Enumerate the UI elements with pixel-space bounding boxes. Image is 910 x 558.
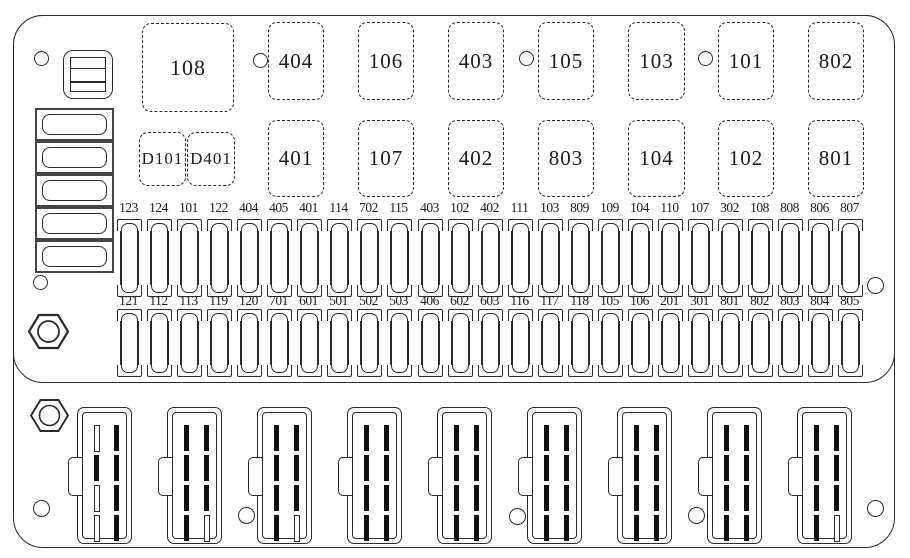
fuse-inner (542, 313, 559, 373)
connector-inner (712, 412, 757, 539)
fuse-box-diagram: 108404106403105103101802D101D40140110740… (0, 0, 910, 558)
fuse-label: 121 (112, 293, 145, 309)
fuse-inner (662, 313, 679, 373)
mounting-hole (34, 51, 49, 66)
connector-slot (294, 515, 300, 542)
connector-slot (384, 485, 389, 511)
connector-inner (802, 412, 847, 539)
connector-slot (634, 455, 639, 481)
connector-tab (518, 457, 532, 496)
fuse-label: 802 (743, 293, 776, 309)
fuse-inner (181, 313, 198, 373)
fuse (508, 219, 533, 297)
fuse-inner (782, 313, 799, 373)
relay-label: 103 (639, 49, 674, 74)
fuse (688, 219, 713, 297)
connector-slot (184, 455, 189, 481)
fuse-label: 107 (683, 200, 716, 216)
mounting-hole (867, 500, 884, 517)
fuse-label: 105 (593, 293, 626, 309)
connector-slot (544, 425, 549, 451)
connector-slot (364, 515, 369, 541)
fuse-label: 104 (623, 200, 656, 216)
relay-label: 403 (459, 49, 494, 74)
fuse (177, 219, 202, 297)
connector-inner (262, 412, 307, 539)
connector-slot (474, 515, 479, 541)
fuse-label: 124 (142, 200, 175, 216)
connector-slot (564, 515, 569, 541)
fuse (237, 219, 262, 297)
fuse (808, 309, 833, 377)
fuse-inner (632, 313, 649, 373)
connector-slot (454, 455, 459, 481)
fuse-inner (512, 223, 529, 293)
fuse-inner (301, 223, 318, 293)
fuse-inner (692, 223, 709, 293)
fuse-label: 807 (833, 200, 866, 216)
fuse-label: 405 (262, 200, 295, 216)
fuse-inner (722, 313, 739, 373)
mounting-hole (688, 507, 705, 524)
fuse (598, 309, 623, 377)
relay-label: 104 (639, 146, 674, 171)
fuse-label: 804 (803, 293, 836, 309)
fuse-label: 406 (413, 293, 446, 309)
relay-label: 108 (170, 55, 206, 81)
terminal-stack-item (35, 240, 114, 273)
connector-slot (724, 515, 729, 541)
terminal-stack-item (35, 141, 114, 174)
fuse (327, 219, 352, 297)
connector-slot (454, 485, 459, 511)
hex-bolt-icon (30, 398, 69, 433)
fuse-label: 102 (443, 200, 476, 216)
fuse (508, 309, 533, 377)
connector-slot (274, 515, 279, 541)
fuse (538, 309, 563, 377)
connector-slot (724, 425, 729, 451)
fuse-inner (151, 313, 168, 373)
fuse (838, 309, 863, 377)
connector-slot (184, 515, 189, 541)
connector-inner (442, 412, 487, 539)
relay-label: 803 (549, 146, 584, 171)
relay-label: 105 (549, 49, 584, 74)
connector-slot (654, 515, 659, 541)
fuse-label: 112 (142, 293, 175, 309)
relay-box: 108 (142, 23, 234, 112)
relay-label: 802 (819, 49, 854, 74)
fuse-inner (812, 223, 829, 293)
fuse-inner (452, 313, 469, 373)
connector (257, 407, 312, 544)
connector-slot (94, 425, 100, 452)
relay-box: 101 (718, 22, 774, 100)
connector-slot (544, 485, 549, 511)
fuse-label: 118 (563, 293, 596, 309)
fuse-inner (121, 313, 138, 373)
fuse (237, 309, 262, 377)
fuse (387, 309, 412, 377)
connector-inner (622, 412, 667, 539)
fuse-label: 601 (292, 293, 325, 309)
connector-slot (564, 485, 569, 511)
fuse-inner (241, 223, 258, 293)
fuse (718, 219, 743, 297)
connector (77, 407, 132, 544)
connector-slot (274, 485, 279, 511)
fuse-inner (662, 223, 679, 293)
connector-slot (204, 455, 209, 481)
fuse-inner (482, 313, 499, 373)
connector-slot (114, 515, 119, 541)
fuse-label: 403 (413, 200, 446, 216)
fuse-label: 116 (503, 293, 536, 309)
fuse (478, 309, 503, 377)
fuse (598, 219, 623, 297)
relay-box: 105 (538, 22, 594, 100)
connector-slot (94, 515, 100, 542)
connector-slot (294, 425, 299, 451)
connector (617, 407, 672, 544)
connector-tab (428, 457, 442, 496)
connector (797, 407, 852, 544)
connector-slot (204, 485, 209, 511)
fuse-label: 701 (262, 293, 295, 309)
connector-slot (474, 455, 479, 481)
connector-slot (724, 455, 729, 481)
fuse-inner (632, 223, 649, 293)
connector-slot (384, 455, 389, 481)
fuse-inner (241, 313, 258, 373)
connector-slot (184, 425, 189, 451)
connector (527, 407, 582, 544)
connector-slot (204, 425, 209, 451)
connector-tab (248, 457, 262, 496)
fuse (267, 309, 292, 377)
terminal-stack-item (35, 108, 114, 141)
mounting-hole (238, 507, 255, 524)
fuse-label: 106 (623, 293, 656, 309)
fuse (748, 219, 773, 297)
fuse-inner (151, 223, 168, 293)
connector-tab (608, 457, 622, 496)
connector-slot (744, 515, 749, 541)
connector-slot (834, 485, 839, 511)
fuse-label: 805 (833, 293, 866, 309)
fuse (538, 219, 563, 297)
fuse-inner (572, 223, 589, 293)
fuse (418, 309, 443, 377)
fuse-inner (782, 223, 799, 293)
connector-slot (274, 425, 279, 451)
fuse-label: 808 (773, 200, 806, 216)
fuse (357, 309, 382, 377)
relay-box: 402 (448, 120, 504, 197)
fuse-inner (331, 313, 348, 373)
terminal-stack-item (35, 174, 114, 207)
fuse-inner (542, 223, 559, 293)
connector-slot (834, 425, 839, 451)
connector-slot (654, 425, 659, 451)
fuse-inner (842, 313, 859, 373)
fuse (568, 309, 593, 377)
connector-slot (384, 515, 389, 541)
fuse-inner (482, 223, 499, 293)
fuse-label: 123 (112, 200, 145, 216)
relay-box: 102 (718, 120, 774, 197)
connector-slot (634, 485, 639, 511)
fuse (628, 219, 653, 297)
relay-box: 404 (268, 22, 324, 100)
connector-slot (204, 515, 210, 542)
fuse-label: 103 (533, 200, 566, 216)
relay-box: 801 (808, 120, 864, 197)
connector-inner (532, 412, 577, 539)
connector-slot (94, 455, 99, 481)
connector-slot (654, 455, 659, 481)
connector-slot (634, 425, 639, 451)
connector-slot (364, 485, 369, 511)
fuse-inner (121, 223, 138, 293)
relay-label: 101 (729, 49, 764, 74)
fuse-inner (211, 223, 228, 293)
connector-tab (158, 457, 172, 496)
connector-tab (68, 457, 82, 496)
fuse-label: 401 (292, 200, 325, 216)
fuse (448, 309, 473, 377)
connector-slot (454, 425, 459, 451)
fuse (778, 219, 803, 297)
relay-box: 403 (448, 22, 504, 100)
fuse-label: 603 (473, 293, 506, 309)
connector-slot (364, 425, 369, 451)
fuse-inner (692, 313, 709, 373)
fuse-label: 402 (473, 200, 506, 216)
connector-slot (834, 455, 839, 481)
relay-box: 104 (628, 120, 685, 197)
connector-slot (184, 485, 189, 511)
connector-inner (172, 412, 217, 539)
relay-label: 402 (459, 146, 494, 171)
fuse-label: 111 (503, 200, 536, 216)
fuse-inner (271, 313, 288, 373)
fuse (778, 309, 803, 377)
connector-slot (814, 425, 819, 451)
connector-tab (788, 457, 802, 496)
relay-label: 102 (729, 146, 764, 171)
mounting-hole (867, 277, 884, 294)
fuse-label: 302 (713, 200, 746, 216)
fuse-inner (422, 223, 439, 293)
fuse (327, 309, 352, 377)
fuse-inner (752, 313, 769, 373)
fuse-inner (211, 313, 228, 373)
fuse-label: 502 (352, 293, 385, 309)
connector-slot (544, 515, 549, 541)
fuse-label: 803 (773, 293, 806, 309)
fuse-label: 110 (653, 200, 686, 216)
mounting-hole (509, 508, 526, 525)
mounting-hole (33, 275, 48, 290)
connector-slot (274, 455, 279, 481)
fuse-inner (722, 223, 739, 293)
connector-slot (564, 425, 569, 451)
mounting-hole (519, 51, 534, 66)
fuse-inner (812, 313, 829, 373)
fuse (297, 309, 322, 377)
connector-slot (634, 515, 639, 541)
fuse-inner (361, 313, 378, 373)
fuse-inner (271, 223, 288, 293)
fuse (357, 219, 382, 297)
fuse (418, 219, 443, 297)
fuse-label: 108 (743, 200, 776, 216)
fuse-label: 702 (352, 200, 385, 216)
breaker-component-inner (70, 57, 106, 92)
fuse-inner (301, 313, 318, 373)
fuse-label: 122 (202, 200, 235, 216)
fuse (718, 309, 743, 377)
fuse (748, 309, 773, 377)
connector-slot (744, 455, 749, 481)
fuse-inner (391, 223, 408, 293)
connector-slot (744, 485, 749, 511)
fuse (117, 309, 142, 377)
relay-box: D401 (187, 132, 235, 186)
connector-slot (114, 425, 119, 451)
fuse-label: 602 (443, 293, 476, 309)
relay-label: 107 (369, 146, 404, 171)
connector-inner (82, 412, 127, 539)
connector-slot (814, 455, 819, 481)
fuse-inner (572, 313, 589, 373)
connector-inner (352, 412, 397, 539)
connector-slot (814, 485, 819, 511)
fuse-label: 114 (322, 200, 355, 216)
fuse (838, 219, 863, 297)
fuse (658, 219, 683, 297)
fuse-label: 404 (232, 200, 265, 216)
fuse (177, 309, 202, 377)
connector-slot (294, 485, 299, 511)
relay-box: 106 (358, 22, 414, 100)
connector-slot (114, 455, 119, 481)
fuse-label: 503 (382, 293, 415, 309)
connector-slot (294, 455, 299, 481)
connector-slot (654, 485, 659, 511)
connector-slot (544, 455, 549, 481)
relay-box: 103 (628, 22, 685, 100)
fuse (808, 219, 833, 297)
mounting-hole (33, 500, 50, 517)
connector-slot (834, 515, 840, 542)
fuse (448, 219, 473, 297)
connector-slot (94, 485, 100, 512)
fuse (628, 309, 653, 377)
fuse-label: 117 (533, 293, 566, 309)
fuse (147, 309, 172, 377)
relay-box: 401 (268, 120, 324, 197)
fuse-inner (602, 223, 619, 293)
relay-label: 401 (279, 146, 314, 171)
fuse-label: 119 (202, 293, 235, 309)
fuse (688, 309, 713, 377)
fuse-inner (331, 223, 348, 293)
relay-box: D101 (139, 132, 186, 186)
relay-label: 404 (279, 49, 314, 74)
connector-slot (384, 425, 389, 451)
connector-slot (744, 425, 749, 451)
connector-tab (698, 457, 712, 496)
connector (347, 407, 402, 544)
fuse-inner (752, 223, 769, 293)
fuse-label: 109 (593, 200, 626, 216)
fuse-label: 201 (653, 293, 686, 309)
fuse-inner (361, 223, 378, 293)
breaker-line (71, 68, 105, 69)
fuse-label: 801 (713, 293, 746, 309)
connector (437, 407, 492, 544)
breaker-line (71, 81, 105, 83)
connector (167, 407, 222, 544)
fuse-label: 101 (172, 200, 205, 216)
fuse-label: 115 (382, 200, 415, 216)
connector-slot (724, 485, 729, 511)
fuse (207, 309, 232, 377)
fuse-inner (602, 313, 619, 373)
connector-slot (474, 485, 479, 511)
fuse (207, 219, 232, 297)
fuse-label: 809 (563, 200, 596, 216)
fuse-inner (181, 223, 198, 293)
fuse (267, 219, 292, 297)
fuse-label: 806 (803, 200, 836, 216)
fuse (478, 219, 503, 297)
terminal-stack-item (35, 207, 114, 240)
hex-bolt-icon (28, 313, 69, 350)
fuse-inner (391, 313, 408, 373)
connector-tab (338, 457, 352, 496)
fuse-inner (422, 313, 439, 373)
relay-label: D101 (142, 149, 184, 169)
fuse (147, 219, 172, 297)
mounting-hole (698, 51, 713, 66)
fuse (658, 309, 683, 377)
fuse (568, 219, 593, 297)
fuse (387, 219, 412, 297)
fuse (117, 219, 142, 297)
relay-box: 803 (538, 120, 594, 197)
relay-box: 107 (358, 120, 414, 197)
fuse-inner (842, 223, 859, 293)
connector-slot (474, 425, 479, 451)
relay-label: D401 (190, 149, 232, 169)
fuse-inner (512, 313, 529, 373)
connector (707, 407, 762, 544)
connector-slot (564, 455, 569, 481)
fuse-label: 120 (232, 293, 265, 309)
mounting-hole (253, 53, 268, 68)
fuse (297, 219, 322, 297)
relay-label: 801 (819, 146, 854, 171)
connector-slot (114, 485, 119, 511)
fuse-label: 501 (322, 293, 355, 309)
fuse-inner (452, 223, 469, 293)
fuse-label: 113 (172, 293, 205, 309)
relay-box: 802 (808, 22, 864, 100)
